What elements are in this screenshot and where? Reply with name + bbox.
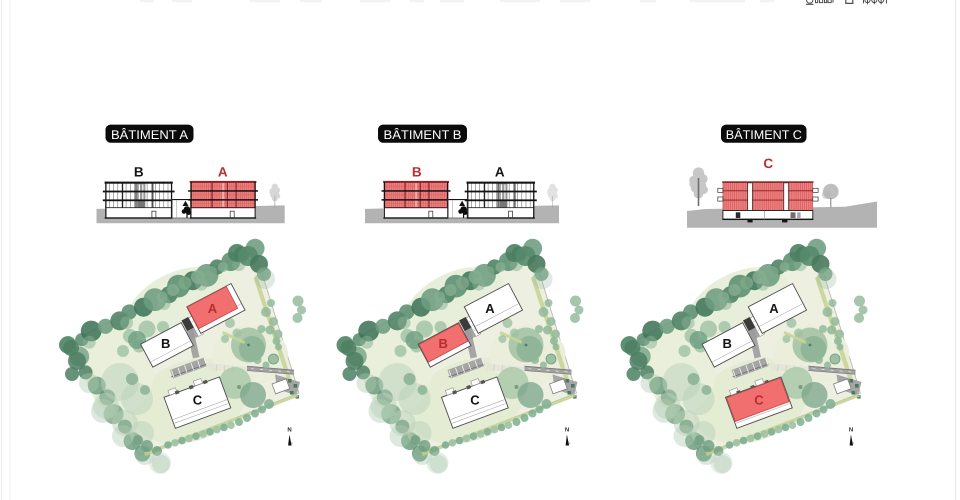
svg-text:BÂTIMENT B: BÂTIMENT B (384, 128, 462, 142)
svg-text:BÂTIMENT C: BÂTIMENT C (726, 128, 802, 142)
svg-text:N: N (849, 427, 853, 434)
svg-text:B: B (134, 165, 144, 180)
svg-text:BÂTIMENT A: BÂTIMENT A (111, 128, 189, 142)
svg-text:A: A (208, 301, 218, 316)
svg-text:B: B (723, 336, 732, 351)
svg-text:B: B (439, 336, 448, 351)
svg-text:N: N (287, 427, 291, 434)
svg-text:B: B (161, 336, 170, 351)
svg-text:A: A (495, 165, 505, 180)
svg-text:N: N (565, 427, 569, 434)
svg-text:C: C (754, 393, 764, 408)
svg-text:B: B (412, 165, 422, 180)
svg-text:C: C (470, 393, 480, 408)
svg-text:A: A (769, 301, 779, 316)
svg-text:A: A (218, 165, 228, 180)
svg-text:C: C (763, 156, 773, 171)
svg-text:C: C (193, 393, 203, 408)
svg-text:A: A (485, 301, 495, 316)
